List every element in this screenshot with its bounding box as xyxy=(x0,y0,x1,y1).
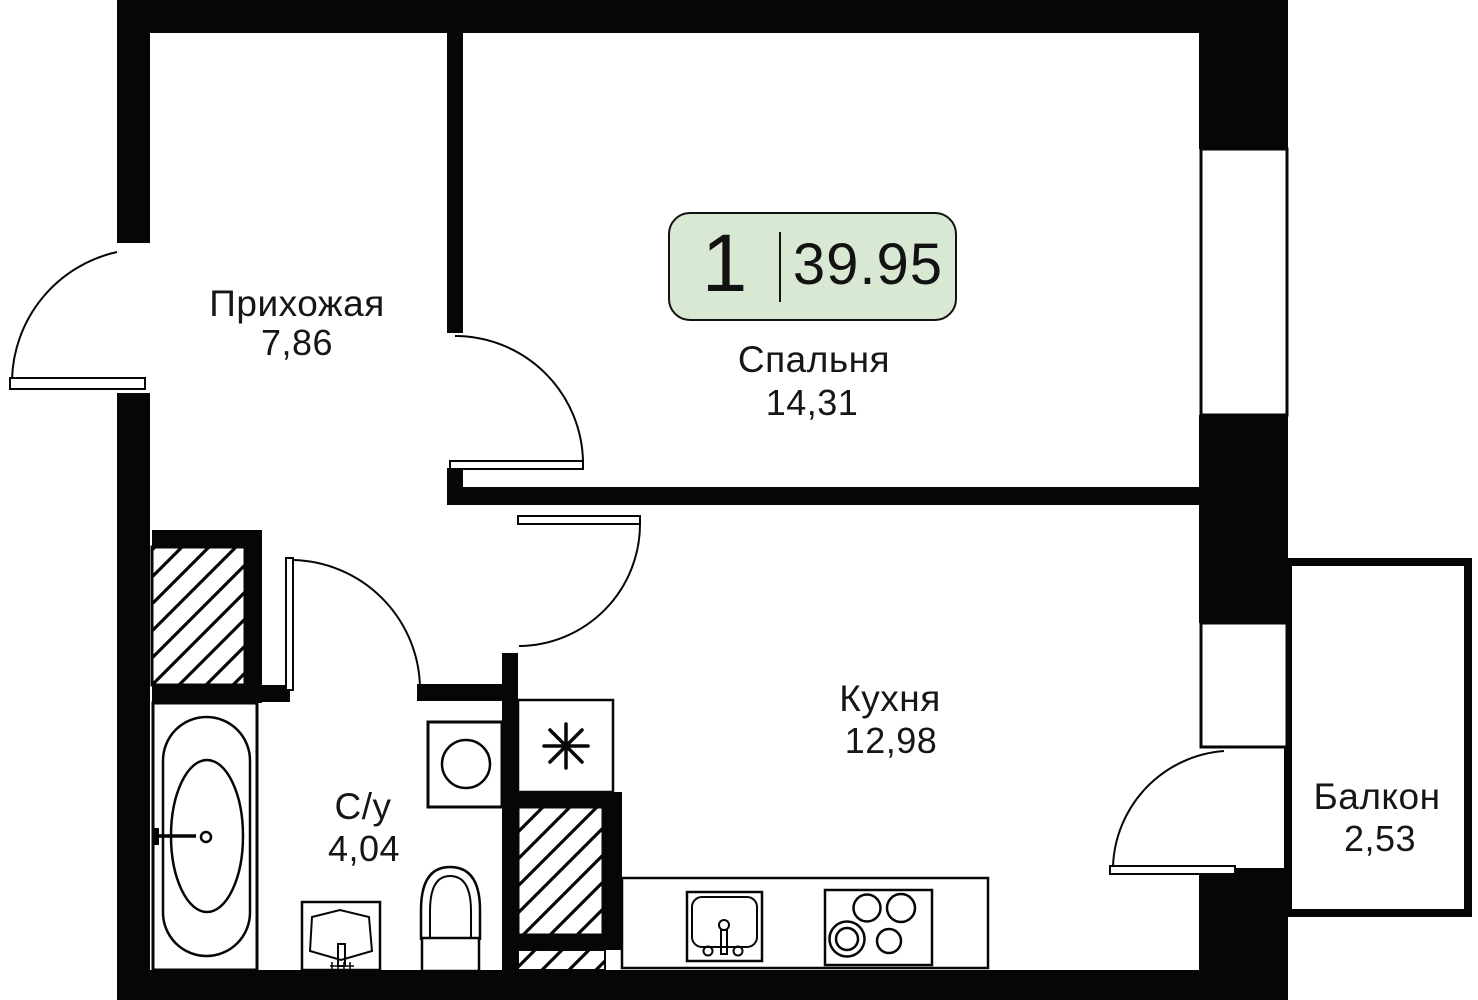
apartment-summary-badge: 1 39.95 xyxy=(668,212,957,321)
bedroom-label: Спальня xyxy=(738,339,890,381)
shaft-hatch-hallway xyxy=(152,547,245,685)
kitchen-window xyxy=(1201,623,1287,747)
kitchen-area: 12,98 xyxy=(845,720,938,762)
balcony-label: Балкон xyxy=(1313,776,1440,818)
floor-plan-drawing xyxy=(0,0,1478,1000)
washing-machine xyxy=(428,722,502,807)
hallway-area: 7,86 xyxy=(261,322,333,364)
rooms-count: 1 xyxy=(670,223,779,311)
asterisk-icon xyxy=(544,724,588,768)
kitchen-door xyxy=(518,516,640,646)
kitchen-label: Кухня xyxy=(839,678,941,720)
bathroom-door xyxy=(286,558,420,690)
toilet xyxy=(421,867,480,971)
entrance-door xyxy=(10,252,145,389)
bathroom-area: 4,04 xyxy=(328,828,400,870)
bathtub xyxy=(153,703,257,970)
floor-plan: Прихожая 7,86 Спальня 14,31 Кухня 12,98 … xyxy=(0,0,1478,1000)
bathroom-label: С/у xyxy=(335,786,392,828)
balcony-area: 2,53 xyxy=(1344,818,1416,860)
walls xyxy=(117,0,1288,1000)
balcony-door xyxy=(1110,751,1235,874)
stove xyxy=(825,890,932,965)
wash-basin xyxy=(302,902,380,970)
bedroom-door xyxy=(450,336,583,469)
bedroom-area: 14,31 xyxy=(766,382,859,424)
balcony-outline xyxy=(1288,562,1468,913)
kitchen-sink xyxy=(687,892,762,961)
hallway-label: Прихожая xyxy=(209,283,384,325)
total-area: 39.95 xyxy=(781,236,955,298)
fridge-niche xyxy=(518,700,613,792)
bedroom-window xyxy=(1201,149,1287,415)
